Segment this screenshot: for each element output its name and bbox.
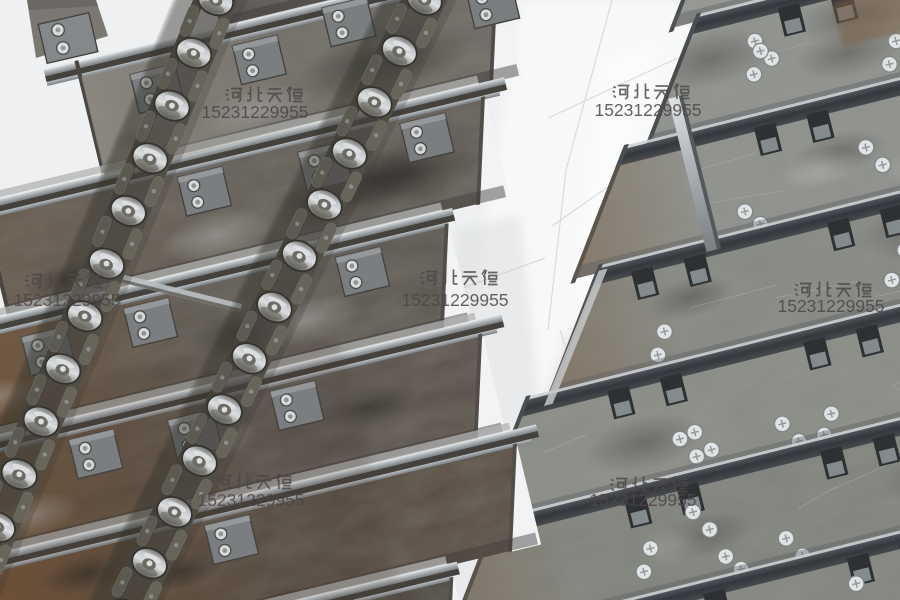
svg-text:15231229955: 15231229955 — [594, 100, 701, 120]
svg-text:15231229955: 15231229955 — [777, 296, 884, 316]
svg-text:15231229955: 15231229955 — [589, 490, 696, 510]
svg-text:15231229955: 15231229955 — [401, 290, 508, 310]
svg-text:15231229955: 15231229955 — [197, 490, 304, 510]
svg-text:15231229955: 15231229955 — [13, 290, 120, 310]
svg-text:15231229955: 15231229955 — [201, 102, 308, 122]
